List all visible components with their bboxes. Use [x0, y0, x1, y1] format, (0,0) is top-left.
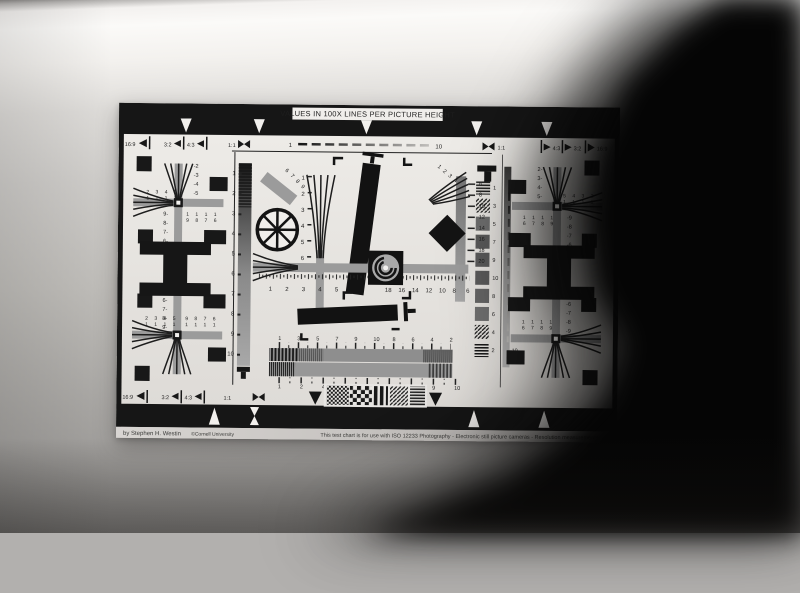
wedge-row: 1 1 1 1	[563, 199, 596, 205]
wedge-row: 2 3 4 5	[145, 316, 178, 322]
aspect-label: 16:9	[122, 395, 133, 401]
center-target	[368, 251, 403, 285]
aspect-label: 16:9	[597, 147, 608, 153]
fine-checker	[327, 386, 349, 405]
diagonal-stripes	[390, 386, 408, 405]
pattern-block	[309, 383, 442, 407]
ruler-end: 10	[435, 144, 442, 150]
iso12233-test-chart: VALUES IN 100X LINES PER PICTURE HEIGHT …	[116, 103, 620, 443]
aspect-label: 3:2	[574, 146, 582, 152]
coarse-checker	[350, 386, 372, 405]
wedge-row: 9 8 7 6	[186, 218, 219, 224]
footer-org: ©Cornell University	[191, 431, 234, 438]
aspect-label: 1:1	[228, 143, 236, 149]
chart-title: VALUES IN 100X LINES PER PICTURE HEIGHT	[280, 109, 455, 120]
horizontal-stripes	[410, 386, 425, 405]
aspect-label: 1:1	[497, 146, 505, 152]
wedge-row: 6 7 8 9	[523, 221, 556, 227]
photo-scene: VALUES IN 100X LINES PER PICTURE HEIGHT …	[0, 0, 800, 533]
aspect-label: 4:3	[553, 146, 561, 152]
wedge-row: 1 1 1 1	[185, 322, 218, 328]
spoke-wheel-icon	[257, 209, 297, 250]
aspect-label: 16:9	[125, 142, 136, 148]
wedge-row: 1 1 1 1	[146, 195, 179, 201]
footer-credit: by Stephen H. Westin	[123, 431, 181, 438]
wedge-row: 1 1 1 1	[186, 212, 219, 218]
wedge-row: 1 1 1 1	[145, 322, 178, 328]
aspect-label: 4:3	[184, 395, 192, 401]
wedge-row: 1 1 1 1	[522, 319, 555, 325]
wedge-row: 9 8 7 6	[185, 316, 218, 322]
wedge-row: 2 3 4 5	[146, 189, 179, 195]
aspect-label: 3:2	[161, 395, 169, 401]
test-chart-card: VALUES IN 100X LINES PER PICTURE HEIGHT …	[116, 103, 620, 443]
wedge-row: 6 7 8 9	[522, 325, 555, 331]
aspect-label: 1:1	[224, 396, 232, 402]
aspect-label: 4:3	[187, 143, 195, 149]
wedge-row: 5 4 3 2	[563, 193, 596, 199]
wedge-row: 1 1 1 1	[523, 215, 556, 221]
aspect-label: 3:2	[164, 142, 172, 148]
